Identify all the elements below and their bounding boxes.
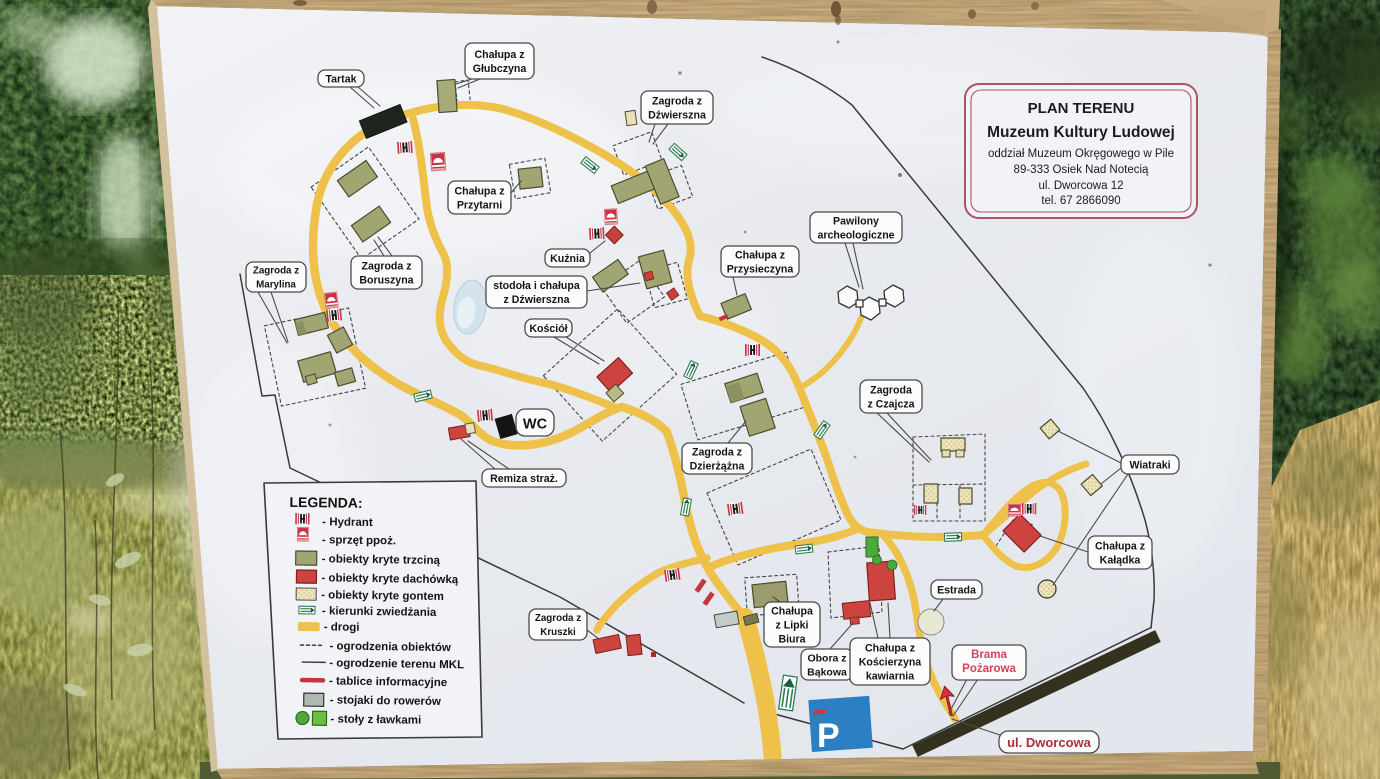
svg-text:archeologiczne: archeologiczne <box>817 230 894 242</box>
svg-text:Zagroda z: Zagroda z <box>692 447 742 459</box>
svg-text:Zagroda: Zagroda <box>870 385 912 397</box>
svg-text:Chałupa z: Chałupa z <box>735 250 785 262</box>
svg-text:WC: WC <box>523 416 548 432</box>
svg-text:ul. Dworcowa: ul. Dworcowa <box>1007 735 1092 750</box>
svg-text:Przytarni: Przytarni <box>457 200 502 212</box>
svg-text:Boruszyna: Boruszyna <box>359 275 413 287</box>
svg-text:- obiekty kryte gontem: - obiekty kryte gontem <box>321 589 444 603</box>
svg-text:Przysieczyna: Przysieczyna <box>727 264 794 276</box>
svg-text:Dźwierszna: Dźwierszna <box>648 110 706 122</box>
svg-text:Pawilony: Pawilony <box>833 216 879 228</box>
svg-text:Brama: Brama <box>971 649 1007 661</box>
svg-text:LEGENDA:: LEGENDA: <box>289 494 362 511</box>
svg-text:Zagroda z: Zagroda z <box>652 96 702 108</box>
svg-text:Chałupa z: Chałupa z <box>865 643 915 655</box>
svg-text:- ogrodzenia obiektów: - ogrodzenia obiektów <box>329 640 451 654</box>
svg-text:Chałupa z: Chałupa z <box>454 186 504 198</box>
svg-text:Tartak: Tartak <box>325 74 356 86</box>
svg-text:Kościerzyna: Kościerzyna <box>859 657 922 669</box>
svg-text:Kałądka: Kałądka <box>1100 555 1141 567</box>
svg-text:Obora z: Obora z <box>807 652 846 664</box>
svg-text:- obiekty kryte trzciną: - obiekty kryte trzciną <box>322 553 441 567</box>
svg-text:kawiarnia: kawiarnia <box>866 671 914 683</box>
svg-text:z Lipki: z Lipki <box>776 620 809 632</box>
svg-text:Pożarowa: Pożarowa <box>962 663 1016 675</box>
svg-text:oddział Muzeum Okręgowego w Pi: oddział Muzeum Okręgowego w Pile <box>988 148 1174 160</box>
svg-text:Bąkowa: Bąkowa <box>807 666 847 678</box>
svg-text:Wiatraki: Wiatraki <box>1129 460 1170 472</box>
svg-text:stodoła i chałupa: stodoła i chałupa <box>493 280 580 292</box>
svg-text:Zagroda z: Zagroda z <box>253 266 299 277</box>
svg-text:tel. 67 2866090: tel. 67 2866090 <box>1041 195 1120 207</box>
svg-text:Remiza straż.: Remiza straż. <box>490 473 558 485</box>
svg-text:- drogi: - drogi <box>324 621 360 633</box>
svg-text:- kierunki zwiedżania: - kierunki zwiedżania <box>322 605 437 619</box>
svg-text:- ogrodzenie terenu MKL: - ogrodzenie terenu MKL <box>329 657 464 671</box>
svg-text:PLAN TERENU: PLAN TERENU <box>1028 100 1135 117</box>
svg-text:- Hydrant: - Hydrant <box>322 516 373 529</box>
svg-text:ul. Dworcowa 12: ul. Dworcowa 12 <box>1038 180 1123 192</box>
svg-text:- stoły z ławkami: - stoły z ławkami <box>330 713 421 726</box>
svg-text:Biura: Biura <box>778 634 805 646</box>
svg-text:- sprzęt ppoż.: - sprzęt ppoż. <box>322 534 396 547</box>
svg-text:P: P <box>817 717 840 755</box>
svg-text:Chałupa z: Chałupa z <box>474 49 524 61</box>
svg-text:- tablice informacyjne: - tablice informacyjne <box>329 675 447 689</box>
svg-text:Dzierżążna: Dzierżążna <box>690 461 745 473</box>
svg-text:z Dźwierszna: z Dźwierszna <box>504 294 570 306</box>
svg-text:Kościół: Kościół <box>529 323 567 335</box>
svg-text:z Czajcza: z Czajcza <box>867 399 914 411</box>
svg-text:Chałupa: Chałupa <box>771 606 813 618</box>
svg-text:Kuźnia: Kuźnia <box>550 253 585 265</box>
svg-text:89-333 Osiek Nad Notecią: 89-333 Osiek Nad Notecią <box>1014 164 1149 176</box>
svg-text:Zagroda z: Zagroda z <box>361 261 411 273</box>
svg-text:- obiekty kryte dachówką: - obiekty kryte dachówką <box>321 572 459 586</box>
svg-text:Estrada: Estrada <box>937 585 976 597</box>
svg-text:Kruszki: Kruszki <box>540 627 576 638</box>
svg-text:- stojaki do rowerów: - stojaki do rowerów <box>330 694 441 708</box>
svg-text:Marylina: Marylina <box>256 280 296 291</box>
svg-text:Chałupa z: Chałupa z <box>1095 541 1145 553</box>
svg-text:Zagroda z: Zagroda z <box>535 613 581 624</box>
svg-text:Muzeum Kultury Ludowej: Muzeum Kultury Ludowej <box>987 124 1175 141</box>
svg-text:Głubczyna: Głubczyna <box>473 63 527 75</box>
